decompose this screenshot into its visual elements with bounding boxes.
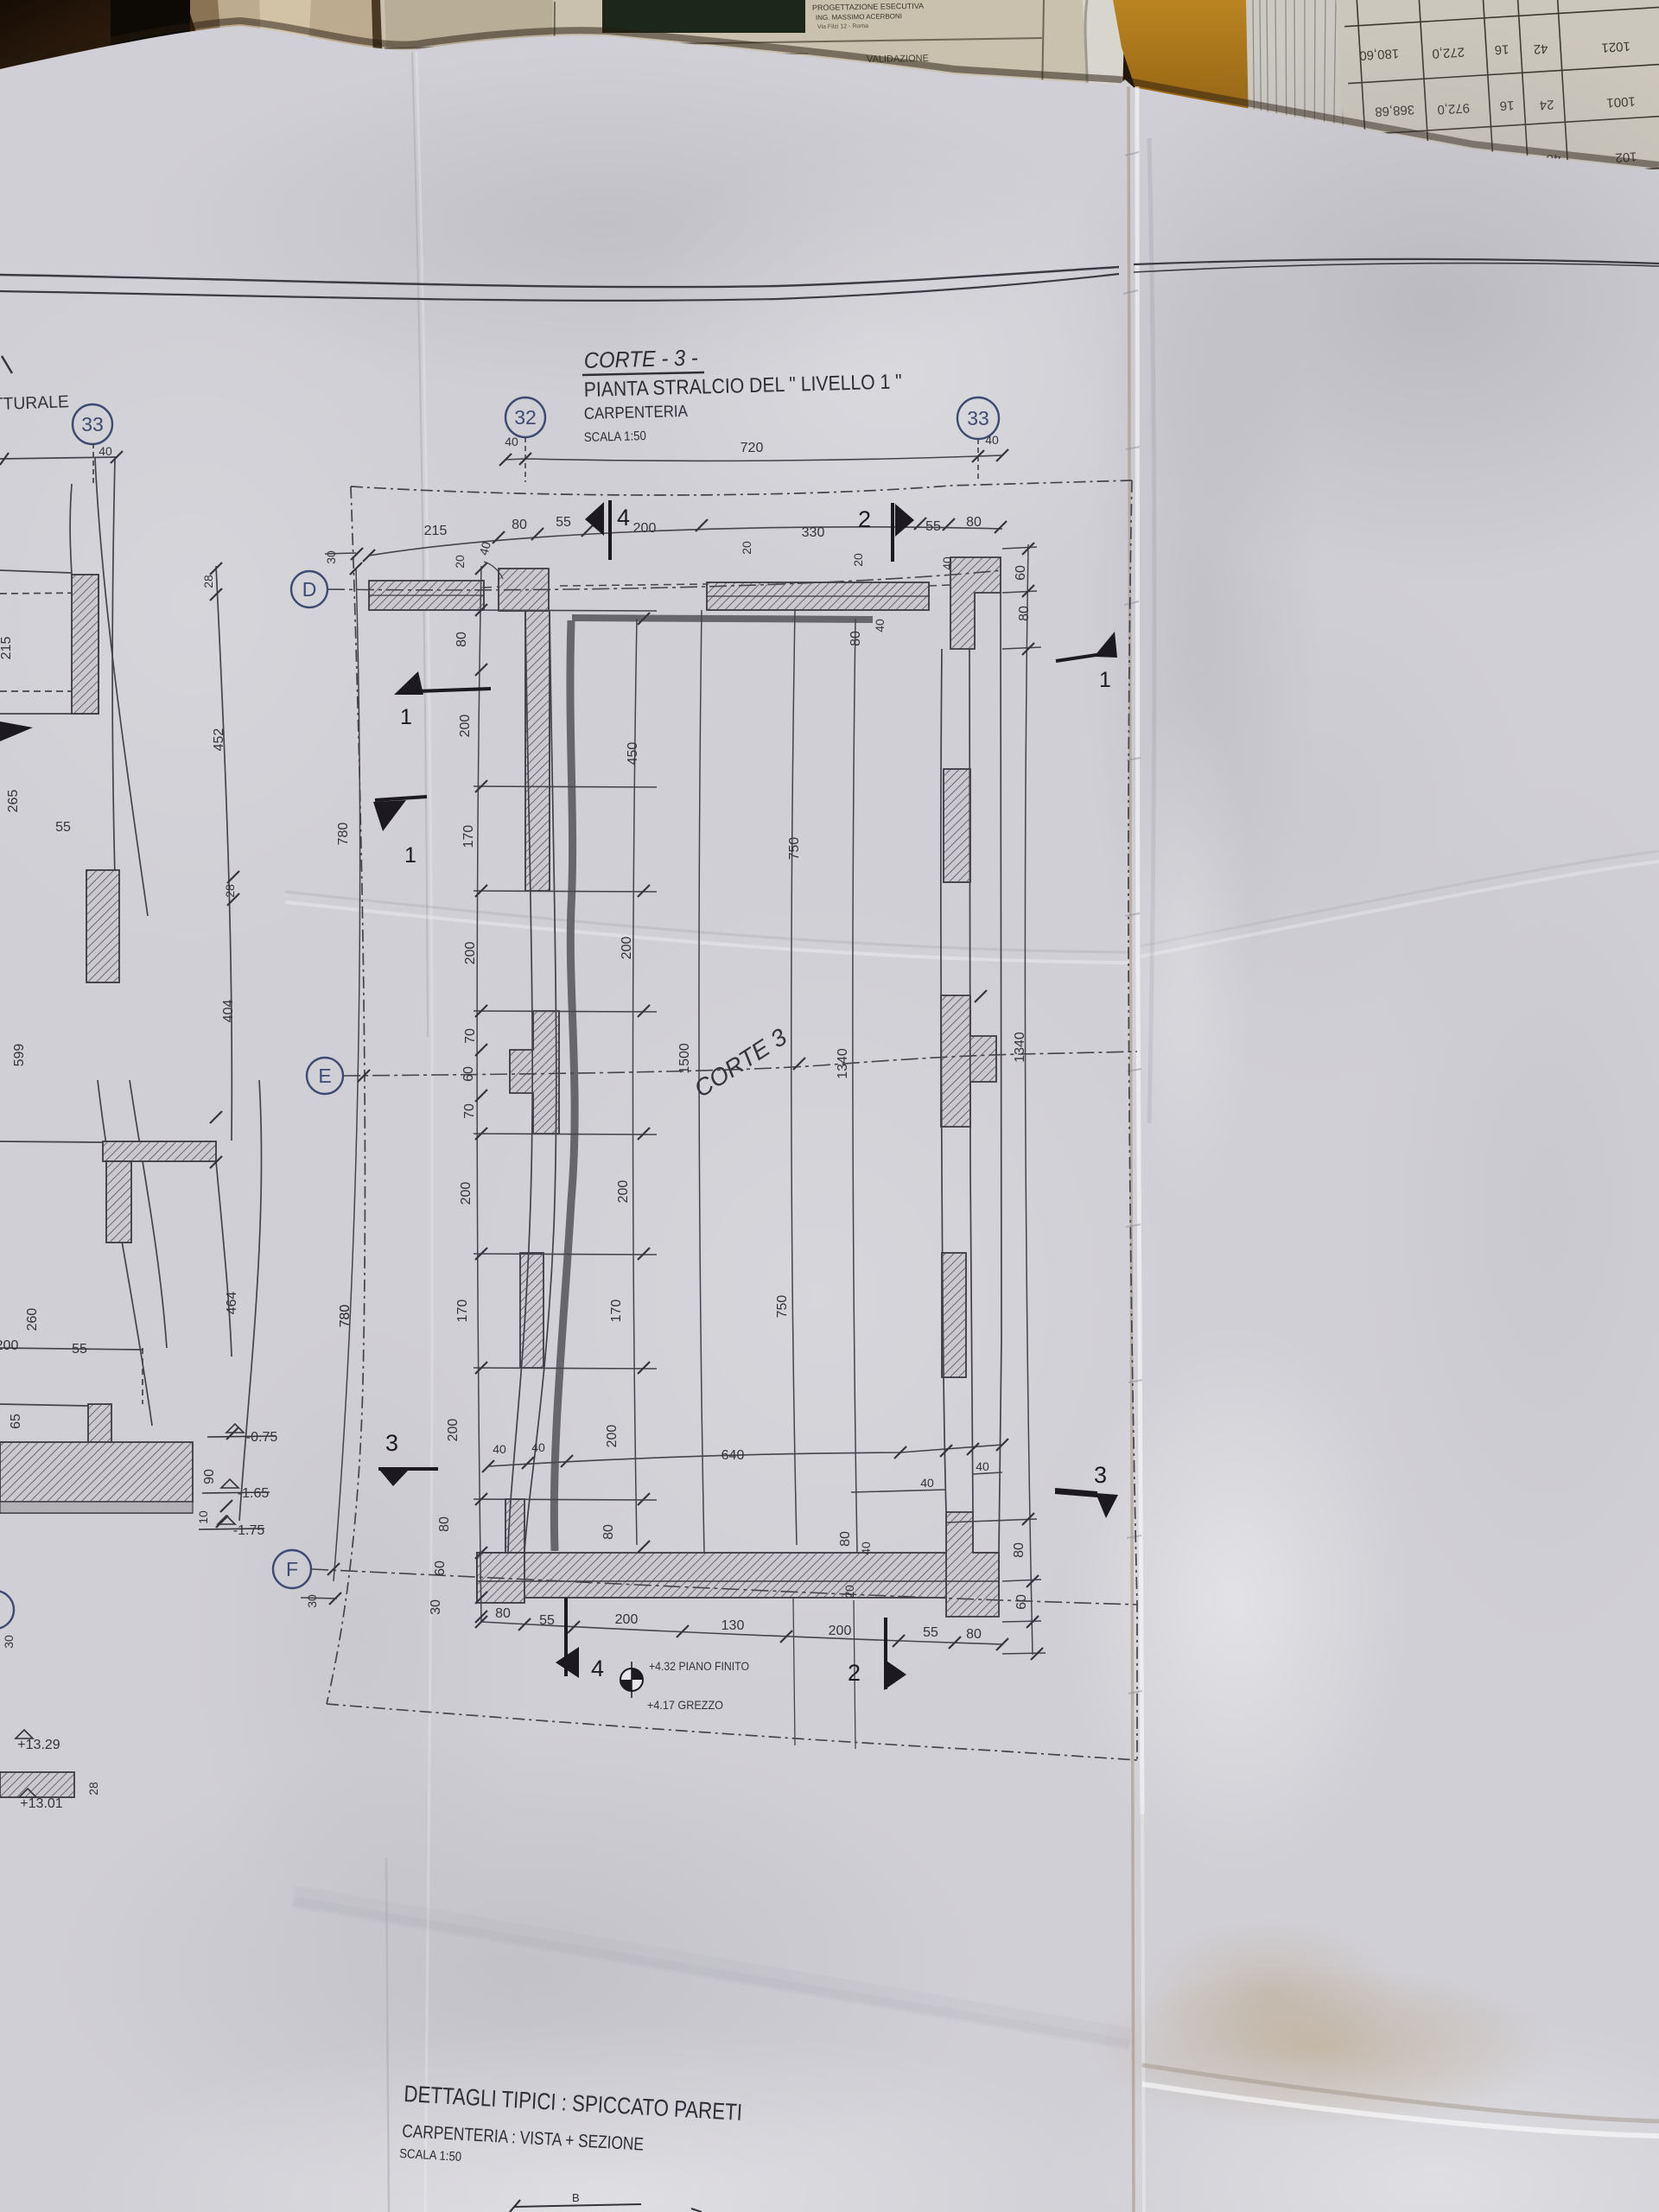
svg-text:599: 599 [12, 1044, 27, 1067]
svg-text:200: 200 [463, 942, 478, 965]
svg-text:130: 130 [721, 1618, 745, 1633]
svg-text:+13.29: +13.29 [17, 1738, 60, 1752]
svg-text:750: 750 [787, 837, 802, 861]
svg-text:32: 32 [514, 406, 537, 429]
svg-text:80: 80 [601, 1524, 616, 1540]
svg-text:28: 28 [201, 575, 215, 588]
svg-text:70: 70 [462, 1103, 477, 1119]
svg-text:80: 80 [495, 1606, 511, 1621]
svg-text:B: B [572, 2191, 580, 2204]
svg-text:40: 40 [873, 619, 887, 632]
svg-text:20: 20 [453, 555, 467, 569]
svg-text:80: 80 [1012, 1542, 1027, 1558]
svg-text:30: 30 [2, 1635, 16, 1649]
svg-text:80: 80 [512, 518, 527, 532]
svg-text:3: 3 [385, 1430, 398, 1456]
svg-text:80: 80 [838, 1531, 853, 1547]
svg-text:200: 200 [620, 937, 634, 960]
svg-text:CORTE - 3 -: CORTE - 3 - [583, 345, 698, 373]
svg-text:60: 60 [1014, 565, 1028, 581]
svg-text:TTURALE: TTURALE [0, 392, 69, 414]
svg-text:E: E [318, 1065, 331, 1087]
svg-text:40: 40 [985, 433, 999, 447]
svg-text:200: 200 [458, 715, 473, 738]
svg-text:200: 200 [446, 1419, 461, 1442]
svg-text:30: 30 [324, 550, 338, 564]
svg-text:65: 65 [9, 1414, 23, 1429]
svg-text:40: 40 [531, 1440, 545, 1454]
svg-text:55: 55 [72, 1342, 87, 1357]
svg-text:780: 780 [336, 823, 351, 846]
svg-text:+13.01: +13.01 [20, 1796, 62, 1811]
svg-text:80: 80 [454, 632, 469, 647]
svg-text:55: 55 [923, 1625, 938, 1640]
svg-text:Via Filzi 12 - Roma: Via Filzi 12 - Roma [817, 23, 868, 30]
svg-text:750: 750 [775, 1295, 790, 1319]
svg-text:60: 60 [1014, 1594, 1029, 1610]
svg-text:40: 40 [920, 1476, 934, 1490]
svg-text:20: 20 [842, 1585, 856, 1599]
svg-text:-1.75: -1.75 [233, 1523, 265, 1538]
svg-text:60: 60 [433, 1560, 448, 1576]
svg-text:1340: 1340 [1013, 1032, 1027, 1063]
svg-text:55: 55 [556, 515, 571, 530]
svg-text:4: 4 [617, 505, 630, 531]
svg-text:D: D [302, 578, 317, 601]
svg-text:3: 3 [1094, 1462, 1107, 1488]
svg-text:30: 30 [305, 1594, 319, 1608]
svg-text:464: 464 [225, 1292, 239, 1315]
svg-text:200: 200 [829, 1624, 852, 1638]
svg-text:452: 452 [212, 728, 226, 752]
svg-text:60: 60 [461, 1066, 476, 1082]
svg-text:1340: 1340 [836, 1048, 850, 1079]
svg-text:170: 170 [455, 1300, 470, 1323]
svg-text:90: 90 [202, 1469, 217, 1484]
svg-text:4: 4 [591, 1656, 604, 1681]
svg-text:40: 40 [99, 444, 112, 458]
svg-text:2: 2 [848, 1660, 861, 1686]
svg-text:CARPENTERIA: CARPENTERIA [584, 403, 689, 423]
svg-text:780: 780 [338, 1305, 353, 1328]
svg-text:28: 28 [223, 884, 237, 898]
svg-text:33: 33 [967, 407, 989, 429]
svg-text:-1.65: -1.65 [238, 1486, 270, 1501]
svg-text:170: 170 [609, 1300, 624, 1323]
svg-text:265: 265 [6, 790, 21, 813]
svg-text:200: 200 [605, 1425, 620, 1448]
svg-text:40: 40 [859, 1541, 873, 1555]
svg-text:200: 200 [615, 1612, 639, 1627]
svg-text:40: 40 [493, 1442, 506, 1456]
svg-text:SCALA 1:50: SCALA 1:50 [584, 429, 646, 445]
svg-text:404: 404 [221, 1000, 236, 1023]
svg-text:ING. MASSIMO ACERBONI: ING. MASSIMO ACERBONI [816, 12, 902, 22]
svg-text:28: 28 [86, 1782, 100, 1796]
svg-text:+4.17 GREZZO: +4.17 GREZZO [647, 1698, 723, 1712]
svg-text:30: 30 [429, 1599, 443, 1615]
svg-text:40: 40 [505, 435, 518, 448]
svg-text:2: 2 [858, 506, 871, 532]
svg-text:80: 80 [966, 515, 982, 530]
svg-text:720: 720 [741, 441, 764, 455]
svg-text:80: 80 [849, 631, 863, 646]
svg-text:20: 20 [740, 541, 753, 555]
svg-text:55: 55 [925, 519, 941, 534]
svg-text:20: 20 [851, 553, 865, 567]
svg-text:1: 1 [404, 843, 416, 868]
svg-text:170: 170 [461, 825, 476, 849]
svg-text:70: 70 [463, 1028, 478, 1044]
svg-text:F: F [286, 1558, 298, 1580]
svg-text:1500: 1500 [677, 1043, 692, 1074]
svg-text:-0.75: -0.75 [246, 1430, 278, 1445]
svg-text:80: 80 [966, 1627, 982, 1642]
svg-text:80: 80 [1017, 606, 1032, 621]
svg-text:10: 10 [196, 1510, 210, 1524]
svg-text:+4.32 PIANO FINITO: +4.32 PIANO FINITO [649, 1659, 749, 1673]
svg-text:640: 640 [721, 1448, 745, 1463]
svg-text:55: 55 [55, 820, 71, 835]
svg-text:40: 40 [940, 556, 954, 570]
svg-text:40: 40 [976, 1459, 989, 1473]
svg-text:55: 55 [539, 1613, 555, 1628]
svg-text:200: 200 [459, 1182, 474, 1205]
svg-text:215: 215 [0, 637, 14, 660]
svg-text:1: 1 [1099, 668, 1111, 692]
svg-text:200: 200 [616, 1180, 631, 1204]
svg-text:330: 330 [802, 525, 825, 540]
svg-text:1: 1 [400, 705, 412, 729]
svg-text:33: 33 [81, 413, 104, 435]
svg-text:200: 200 [633, 521, 657, 536]
svg-text:80: 80 [437, 1516, 452, 1532]
svg-text:215: 215 [424, 524, 448, 538]
svg-text:260: 260 [25, 1308, 40, 1332]
svg-text:200: 200 [0, 1338, 18, 1353]
svg-text:450: 450 [626, 742, 640, 766]
